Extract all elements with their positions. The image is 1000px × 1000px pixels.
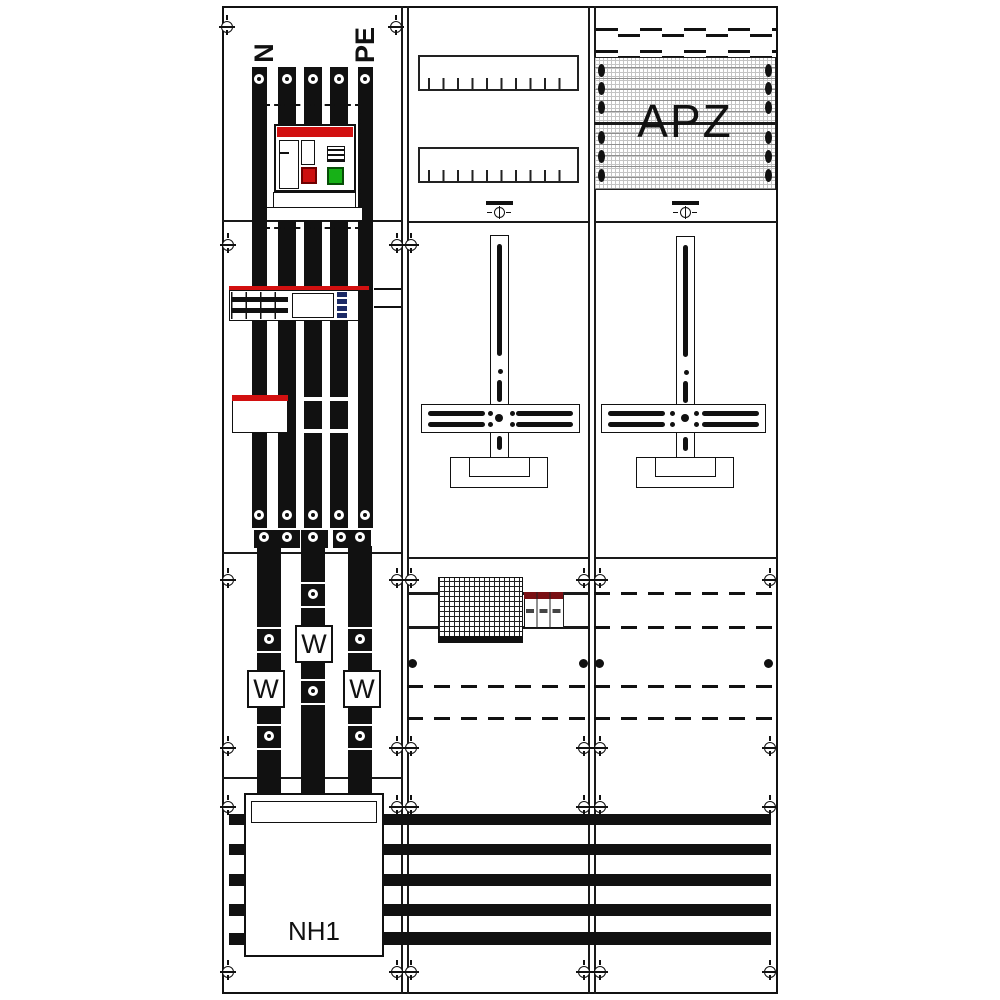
rail-slot [516, 411, 573, 416]
apz-slot [598, 64, 605, 77]
screw-head-icon [391, 801, 403, 813]
fixing-dot [595, 659, 604, 668]
screw-head-icon [405, 574, 417, 586]
rail-slot [683, 381, 688, 403]
meter-label: W [253, 674, 278, 705]
busbar-hole-icon [264, 634, 274, 644]
terminal-strip-bar-1 [231, 297, 288, 302]
right-field-section-line-1 [594, 221, 777, 223]
screw-head-icon [594, 966, 606, 978]
rail-slot [683, 437, 688, 451]
busbar-sleeve [301, 582, 325, 584]
busbar-sleeve [257, 651, 281, 653]
busbar-joint [330, 429, 348, 433]
distribution-busbar-1 [383, 814, 771, 825]
busbar-pe-label: PE [350, 17, 380, 73]
rail-center-dot [681, 414, 689, 422]
nh1-stub [229, 814, 244, 825]
busbar-sleeve [348, 748, 372, 750]
screw-head-icon [578, 574, 590, 586]
apz-slot [598, 169, 605, 182]
rail-slot [428, 422, 485, 427]
breaker-red-indicator [301, 167, 317, 184]
busbar-sleeve [301, 606, 325, 608]
busbar-hole-icon [360, 510, 370, 520]
busbar-hole-icon [355, 532, 365, 542]
distribution-busbar-3 [383, 874, 771, 886]
screw-head-icon [405, 801, 417, 813]
rail-center-dot [495, 414, 503, 422]
rail-slot [683, 245, 688, 357]
nh1-stub [229, 844, 244, 855]
busbar-hole-icon [282, 74, 292, 84]
busbar-sleeve [348, 724, 372, 726]
breaker-lever [301, 140, 315, 165]
busbar-hole-icon [355, 731, 365, 741]
busbar-sleeve [257, 724, 281, 726]
busbar-n-label: N [249, 38, 279, 68]
rail-slot [684, 370, 689, 375]
busbar-hole-icon [334, 74, 344, 84]
rail-dot [510, 422, 515, 427]
busbar-hole-icon [264, 731, 274, 741]
nh1-stub [229, 904, 244, 916]
terminal-strip-window [292, 293, 334, 318]
breaker-red-band [277, 127, 353, 137]
right-dashed-line-1 [594, 592, 777, 595]
nh1-stub [229, 874, 244, 886]
fixing-dot [764, 659, 773, 668]
mounting-rail-horizontal-middle [421, 404, 580, 433]
screw-head-icon [405, 966, 417, 978]
rail-slot [608, 411, 665, 416]
busbar-hole-icon [336, 532, 346, 542]
terminal-connector-blue [337, 299, 347, 304]
breaker-plinth-upper [273, 192, 356, 208]
meter-symbol-right: W [343, 670, 381, 708]
rail-slot [428, 411, 485, 416]
rail-slot [702, 422, 759, 427]
busbar-hole-icon [254, 510, 264, 520]
busbar-joint [304, 397, 322, 401]
screw-head-icon [405, 742, 417, 754]
busbar-sleeve [301, 703, 325, 705]
rail-slot [497, 436, 502, 450]
rail-dot [488, 411, 493, 416]
rail-dot [694, 411, 699, 416]
terminal-connector-blue [337, 313, 347, 318]
busbar-hole-icon [308, 532, 318, 542]
screw-head-icon [390, 21, 402, 33]
busbar-hole-icon [254, 74, 264, 84]
right-dashed-line-3 [594, 685, 777, 688]
screw-head-icon [764, 966, 776, 978]
screw-head-icon [578, 742, 590, 754]
middle-field-section-line-2 [407, 557, 588, 559]
din-rail-top-1 [418, 55, 579, 91]
screw-head-icon [578, 801, 590, 813]
terminal-block-base [438, 636, 523, 643]
nh1-label: NH1 [244, 916, 384, 947]
fixing-bar [672, 201, 699, 205]
breaker-plinth-lower [266, 207, 363, 221]
busbar-hole-icon [308, 74, 318, 84]
right-field-section-line-2 [594, 557, 777, 559]
meter-symbol-middle: W [295, 625, 333, 663]
nh1-stub [229, 933, 244, 945]
busbar-sleeve [301, 679, 325, 681]
apz-slot [765, 150, 772, 163]
screw-head-icon [222, 801, 234, 813]
fixing-bar [486, 201, 513, 205]
apz-slot [765, 169, 772, 182]
breaker-stripe-detail [327, 146, 345, 162]
distribution-busbar-2 [383, 844, 771, 855]
junction-box-red-band [232, 395, 288, 401]
busbar-sleeve [348, 627, 372, 629]
apz-top-rail-1 [596, 28, 776, 37]
screw-head-icon [764, 742, 776, 754]
right-dashed-line-4 [594, 717, 777, 720]
screw-head-icon [578, 966, 590, 978]
fixing-point-icon [494, 207, 505, 218]
terminal-connector-blue [337, 292, 347, 297]
screw-head-icon [222, 239, 234, 251]
rail-slot [497, 380, 502, 402]
screw-head-icon [764, 801, 776, 813]
mounting-rail-horizontal-right [601, 404, 766, 433]
busbar-sleeve [257, 748, 281, 750]
busbar-hole-icon [355, 634, 365, 644]
terminal-block-hatched [438, 577, 523, 638]
rail-dot [510, 411, 515, 416]
screw-head-icon [594, 574, 606, 586]
apz-slot [598, 150, 605, 163]
rail-slot [497, 244, 502, 356]
terminal-strip-tail-line [374, 288, 401, 290]
terminal-strip-bar-2 [231, 308, 288, 313]
screw-head-icon [391, 742, 403, 754]
screw-head-icon [405, 239, 417, 251]
busbar-joint [304, 429, 322, 433]
din-rail-top-2 [418, 147, 579, 183]
busbar-hole-icon [360, 74, 370, 84]
rail-dot [670, 411, 675, 416]
busbar-sleeve [348, 651, 372, 653]
busbar-hole-icon [282, 510, 292, 520]
rail-base-inner-middle [469, 457, 530, 477]
rail-slot [498, 369, 503, 374]
middle-field-section-line-1 [407, 221, 588, 223]
busbar-joint [330, 397, 348, 401]
rail-dot [694, 422, 699, 427]
rail-slot [702, 411, 759, 416]
busbar-hole-icon [308, 589, 318, 599]
right-dashed-line-2 [594, 626, 777, 629]
meter-symbol-left: W [247, 670, 285, 708]
busbar-hole-icon [282, 532, 292, 542]
screw-head-icon [391, 966, 403, 978]
rail-slot [608, 422, 665, 427]
busbar-sleeve [257, 627, 281, 629]
breaker-green-indicator [327, 167, 344, 185]
meter-label: W [301, 629, 326, 660]
fixing-point-icon [680, 207, 691, 218]
wiring-diagram-canvas: N PE W [0, 0, 1000, 1000]
fixing-dot [579, 659, 588, 668]
screw-head-icon [222, 742, 234, 754]
distribution-busbar-5 [383, 932, 771, 945]
screw-head-icon [391, 574, 403, 586]
screw-head-icon [594, 801, 606, 813]
busbar-hole-icon [334, 510, 344, 520]
busbar-hole-icon [259, 532, 269, 542]
apz-slot [765, 64, 772, 77]
busbar-hole-icon [308, 686, 318, 696]
screw-head-icon [222, 574, 234, 586]
middle-dashed-line-2 [407, 717, 588, 720]
rail-slot [516, 422, 573, 427]
fixing-dot [408, 659, 417, 668]
screw-head-icon [391, 239, 403, 251]
screw-head-icon [222, 966, 234, 978]
breaker-left-module [279, 140, 299, 189]
module-device-terminals [526, 609, 562, 613]
nh1-fuse-box-slot [251, 801, 377, 823]
apz-label: APZ [594, 94, 776, 148]
rail-dot [670, 422, 675, 427]
rail-dot [488, 422, 493, 427]
screw-head-icon [594, 742, 606, 754]
breaker-left-module-line [279, 152, 289, 154]
middle-dashed-line-1 [407, 685, 588, 688]
terminal-connector-blue [337, 306, 347, 311]
rail-base-inner-right [655, 457, 716, 477]
busbar-hole-icon [308, 510, 318, 520]
terminal-strip-tail-line [374, 306, 401, 308]
distribution-busbar-4 [383, 904, 771, 916]
meter-label: W [349, 674, 374, 705]
screw-head-icon [221, 21, 233, 33]
screw-head-icon [764, 574, 776, 586]
